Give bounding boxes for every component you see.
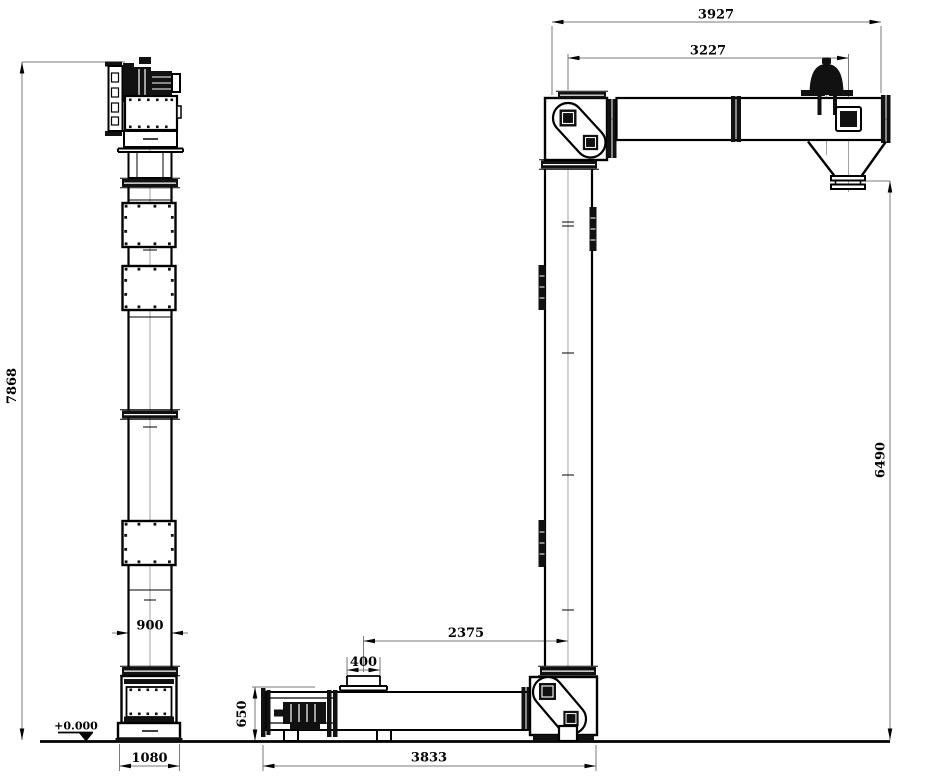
- column-bracket: [539, 520, 546, 567]
- head-transition: [118, 131, 183, 152]
- dim-bottom-length: 3833: [263, 745, 596, 771]
- dim-inlet-to-column: 2375: [364, 626, 569, 672]
- elevation-marker: +0.000: [54, 720, 98, 742]
- column-bracket: [590, 207, 597, 251]
- dim-casing-width: 900: [112, 619, 188, 636]
- sprocket: [563, 711, 578, 726]
- technical-drawing: 7868 3927 3227 6490 900 2375: [0, 0, 925, 778]
- dim-label-top-overall: 3927: [698, 8, 734, 23]
- sprocket: [583, 135, 598, 150]
- dim-label-top-inner: 3227: [690, 44, 726, 59]
- dim-label-inlet-width: 400: [350, 655, 377, 670]
- dim-discharge-drop: 6490: [862, 181, 892, 740]
- base-frame: [116, 723, 183, 742]
- inspection-door: [123, 266, 176, 310]
- dim-label-base-width: 1080: [131, 751, 167, 766]
- sprocket: [560, 110, 577, 127]
- casing-flange: [120, 178, 180, 187]
- access-door: [836, 107, 861, 131]
- inspection-door: [123, 521, 176, 565]
- dim-label-bottom-length: 3833: [411, 751, 447, 766]
- casing-flange: [120, 410, 180, 419]
- column-flange: [538, 666, 598, 675]
- dim-overall-height: 7868: [5, 62, 125, 740]
- dim-label-overall-height: 7868: [5, 368, 20, 404]
- corner-foot: [559, 726, 577, 741]
- support-foot: [284, 730, 298, 741]
- head-housing: [125, 96, 181, 130]
- top-corner-box: [545, 91, 617, 164]
- column-flange: [539, 160, 599, 169]
- right-elevator: [527, 91, 617, 741]
- boot-section: [122, 676, 177, 723]
- dim-label-bottom-height: 650: [235, 700, 250, 727]
- head-mounting-plate: [105, 62, 123, 137]
- right-column-casing: [545, 170, 592, 667]
- dim-label-inlet-to-column: 2375: [448, 626, 484, 641]
- dim-base-width: 1080: [120, 744, 180, 771]
- elevation-label: +0.000: [54, 720, 98, 733]
- discharge-hopper: [808, 142, 886, 190]
- bottom-corner-box: [527, 671, 597, 742]
- sprocket: [539, 683, 556, 700]
- casing-flange: [120, 666, 180, 675]
- dim-label-casing-width: 900: [136, 619, 163, 634]
- head-neck: [129, 152, 172, 178]
- feed-inlet: [340, 676, 387, 691]
- bottom-conveyor: [261, 676, 530, 741]
- inspection-door: [123, 203, 176, 247]
- centerlines: [143, 58, 888, 740]
- dim-label-discharge-drop: 6490: [874, 442, 889, 478]
- top-conveyor: [617, 58, 891, 190]
- support-foot: [377, 730, 391, 741]
- left-elevator: [105, 57, 183, 742]
- dim-inlet-width: 400: [347, 655, 380, 676]
- column-bracket: [539, 265, 546, 310]
